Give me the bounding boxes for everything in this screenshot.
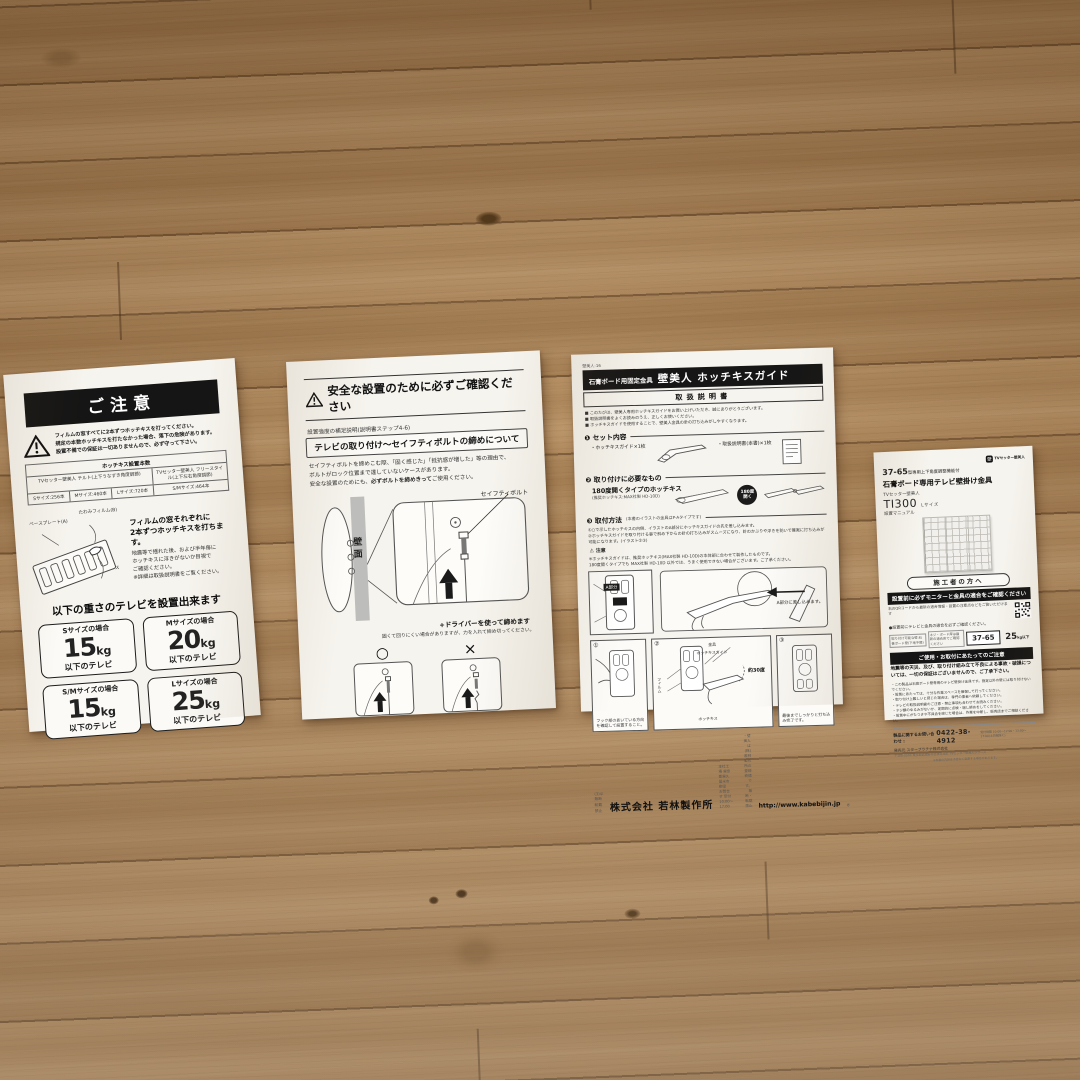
correct-example: ○: [351, 643, 416, 718]
spec-cell: ネジ・ボード厚は最新の適合表でご確認ください: [927, 630, 964, 649]
stapler-guide-manual: 壁美人-16 石膏ボード用固定金具 壁美人 ホッチキスガイド 取扱説明書 ■ こ…: [571, 347, 843, 711]
step-panel-1: ① フック部のあいている方向を確認して設置すること。: [590, 639, 649, 733]
weight-kg: 25: [171, 685, 206, 716]
baseplate-drawing: [27, 514, 133, 601]
spec-max-weight: 25kg以下: [1002, 631, 1032, 642]
step-panel-3: ③ 最後までしっかりと打ち込み完了です。: [776, 634, 835, 728]
safety-heading: 安全な設置のために必ずご確認ください: [327, 374, 524, 415]
manual-doc-icon: [781, 439, 802, 466]
baseplate-illustration: ベースプレート(A) たわみフィルム(B) ホッチキス: [26, 499, 238, 600]
bolt-illustration: 壁面 セイフティボルト: [308, 487, 536, 625]
weight-box-m: Mサイズの場合 20kg 以下のテレビ: [142, 611, 241, 672]
divider: [705, 514, 826, 518]
contact-label: 製品に関するお問い合わせ :: [893, 731, 935, 745]
section2-heading: ❷ 取り付けに必要なもの: [585, 473, 661, 485]
spec-table: 取り付け可能な壁:石膏ボード壁(下地不問) ネジ・ボード厚は最新の適合表でご確認…: [889, 627, 1033, 650]
step1-caption: フック部のあいている方向を確認して設置すること。: [596, 717, 644, 730]
open-180-badge: 180度開く: [737, 485, 758, 506]
stapler-label: ホッチキス: [698, 716, 718, 723]
safety-bolt-sheet: 安全な設置のために必ずご確認ください 設置強度の補足説明(説明書ステップ4-6)…: [286, 350, 556, 719]
brand-logo-icon: 壁: [986, 455, 993, 462]
insert-panel: A部分に差し込みます。: [658, 565, 830, 634]
weight-unit: kg: [204, 697, 220, 711]
a-part-drawing: [589, 571, 651, 635]
wall-label: 壁面: [350, 536, 364, 561]
step1-drawing: [591, 648, 646, 701]
table-cell: Sサイズ:256本: [28, 492, 71, 505]
guide-part-drawing: [655, 441, 708, 464]
ti300-manual: 37-65型専用上下角度調整機能付 壁 TVセッター壁美人 石膏ボード専用テレビ…: [873, 446, 1043, 720]
trademark-note: ・壁美人は(株)若林製作所の登録商標です。無断・転載禁止: [743, 734, 752, 810]
ok-diagram: [352, 660, 416, 719]
wrong-example: ×: [439, 639, 504, 714]
contact-hours: 受付時間 10:00〜12:00・13:00〜17:00(土日祝除く): [980, 727, 1036, 737]
bracket-illustration: [922, 515, 992, 574]
weight-unit: kg: [96, 644, 112, 658]
angle-label: 約30度: [748, 666, 765, 673]
warning-triangle-icon: [23, 433, 51, 458]
bolt-diagram-drawing: [308, 487, 536, 625]
paragraph-bold: 必ずボルトを締めきって: [371, 477, 432, 486]
weight-unit: kg: [200, 636, 216, 650]
section3-heading: ❸ 取付方法: [587, 515, 623, 526]
set-item: ・取扱説明書(本書)×1枚: [717, 440, 771, 449]
step-panel-2: ② 金具 ホッチキスガイド 約30度 フィルム ホッチキス: [651, 635, 774, 730]
weight-box-l: Lサイズの場合 25kg 以下のテレビ: [146, 672, 245, 733]
bracket-label: 金具: [708, 642, 716, 648]
divider: [630, 431, 824, 437]
warning-triangle-icon: [305, 391, 323, 408]
a-part-label: A部分: [603, 584, 619, 591]
table-cell: Lサイズ:720本: [112, 485, 155, 498]
table-cell: Mサイズ:460本: [70, 489, 113, 502]
a-part-panel: A部分: [588, 570, 654, 636]
model-range: 37-65型専用上下角度調整機能付: [882, 457, 960, 479]
stapler-open-drawing: [763, 481, 826, 507]
spec-cell: 取り付け可能な壁:石膏ボード壁(下地不問): [889, 634, 926, 648]
registered-icon: ®: [846, 802, 850, 807]
weight-box-sm: S/Mサイズの場合 15kg 以下のテレビ: [42, 679, 141, 740]
divider: [666, 473, 826, 478]
ng-diagram: [440, 656, 504, 715]
weight-kg: 15: [62, 632, 97, 663]
film-label: フィルム: [656, 677, 662, 693]
stapler-closed-drawing: [674, 485, 732, 509]
photo-scene: ご注意 フィルムの窓すべてに2本ずつホッチキスを打ってください。 規定の本数ホッ…: [0, 0, 1080, 1080]
guide-label: ホッチキスガイド: [696, 650, 727, 657]
weight-box-s: Sサイズの場合 15kg 以下のテレビ: [38, 618, 137, 679]
spec-inch-range: 37-65: [966, 630, 1001, 645]
staple-count-table: ホッチキス設置本数 TVセッター壁美人 チルト(上下うなずき角度調節) TVセッ…: [25, 450, 229, 506]
section1-heading: ❶ セット内容: [584, 432, 626, 443]
weight-kg: 15: [67, 693, 102, 724]
caution-title-banner: ご注意: [24, 379, 220, 427]
set-item: ・ホッチキスガイド×1枚: [591, 443, 646, 452]
section3-note: (本書のイラストの金具はP-Aタイプです): [626, 515, 701, 523]
footer-tiny: (3)© 無断転載禁止: [594, 790, 604, 813]
step3-drawing: [777, 643, 832, 696]
caution-sheet: ご注意 フィルムの窓すべてに2本ずつホッチキスを打ってください。 規定の本数ホッ…: [3, 358, 261, 732]
contact-phone: 0422-38-4912: [936, 727, 979, 745]
brand-logo: 壁 TVセッター壁美人: [986, 454, 1025, 463]
step3-caption: 最後までしっかりと打ち込み完了です。: [782, 711, 830, 724]
weight-unit: kg: [100, 705, 116, 719]
company-name: 株式会社 若林製作所: [610, 795, 714, 813]
company-address: 本社工場 東京都東久留米市柳窪お問合せ 受付 10:00〜17:00: [718, 765, 733, 811]
weight-kg: 20: [166, 624, 201, 655]
banner-product: 壁美人 ホッチキスガイド: [657, 367, 789, 386]
qr-code: [1014, 600, 1032, 618]
brand-logo-text: TVセッター壁美人: [994, 455, 1025, 461]
banner-category: 石膏ボード用固定金具: [589, 375, 653, 386]
